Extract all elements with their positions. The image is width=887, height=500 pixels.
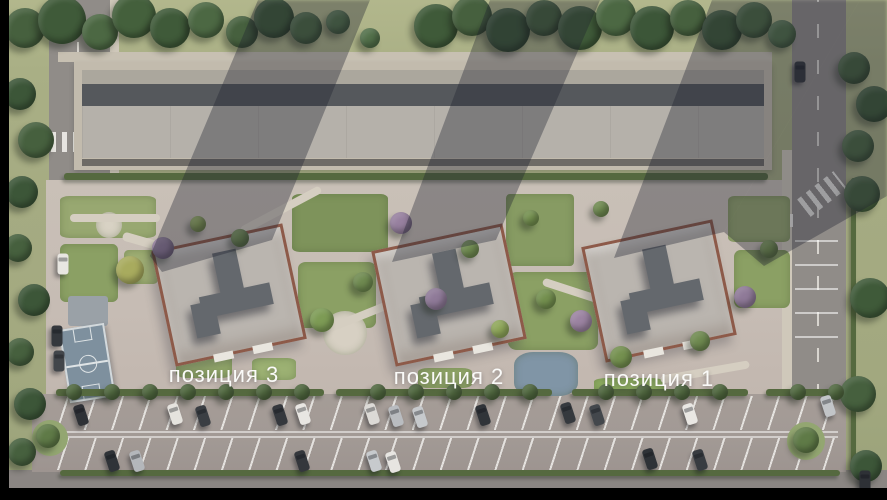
tree <box>491 320 509 338</box>
tree <box>36 424 60 448</box>
car <box>58 254 69 275</box>
surface-parking-lot <box>32 394 846 472</box>
tree <box>18 284 50 316</box>
footpath <box>58 52 772 62</box>
tree <box>112 0 156 38</box>
garden-bed <box>292 194 388 252</box>
walkway <box>70 214 160 222</box>
position-label-3: позиция 3 <box>169 362 279 388</box>
tree <box>610 346 632 368</box>
tree <box>690 331 710 351</box>
tree <box>793 427 819 453</box>
letterbox-bar-left <box>0 0 9 500</box>
parking-stall-lines <box>40 396 838 430</box>
tree <box>310 308 334 332</box>
tree <box>6 176 38 208</box>
hedge-row <box>60 470 840 476</box>
tree <box>370 384 386 400</box>
workout-pad <box>68 296 108 326</box>
aisle-line <box>40 431 838 433</box>
tree <box>116 256 144 284</box>
tree <box>850 278 887 318</box>
tree <box>593 201 609 217</box>
tree <box>188 2 224 38</box>
garage-north-wall <box>82 84 764 106</box>
tree <box>8 438 36 466</box>
tree <box>712 384 728 400</box>
tree <box>425 288 447 310</box>
tree <box>414 4 458 48</box>
position-label-1: позиция 1 <box>604 366 714 392</box>
tree <box>294 384 310 400</box>
garden-bed <box>60 244 118 302</box>
tree <box>6 338 34 366</box>
tree <box>14 388 46 420</box>
tree <box>523 210 539 226</box>
tree <box>630 6 674 50</box>
hedge-row <box>336 389 552 396</box>
tree <box>734 286 756 308</box>
tree <box>353 272 373 292</box>
tree <box>570 310 592 332</box>
tree <box>522 384 538 400</box>
court-key <box>73 327 93 343</box>
car <box>54 351 65 372</box>
hedge-row <box>851 178 856 470</box>
tree <box>142 384 158 400</box>
tree <box>536 289 556 309</box>
tree <box>66 384 82 400</box>
tree <box>790 384 806 400</box>
car <box>52 326 63 347</box>
garage-roof-edge <box>82 70 764 84</box>
position-label-2: позиция 2 <box>394 364 504 390</box>
tree <box>18 122 54 158</box>
letterbox-bar-bottom <box>0 488 887 500</box>
tree <box>150 8 190 48</box>
tree <box>104 384 120 400</box>
parking-stall-lines <box>40 438 838 470</box>
garden-bed <box>506 194 574 266</box>
tree <box>840 376 876 412</box>
site-plan-render: позиция 3 позиция 2 позиция 1 <box>0 0 887 500</box>
tree <box>360 28 380 48</box>
